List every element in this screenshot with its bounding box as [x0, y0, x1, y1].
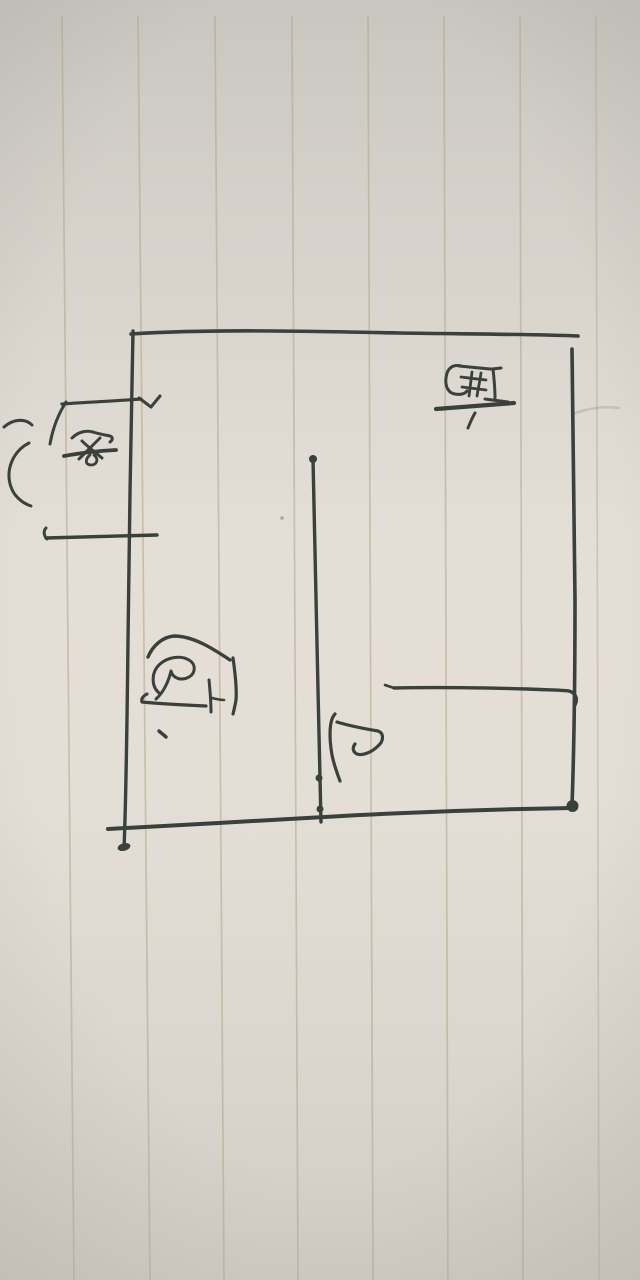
ink-dot-bottom-right	[567, 800, 579, 812]
hand-drawn-floor-plan-sketch	[0, 0, 640, 1280]
notebook-photo	[0, 0, 640, 1280]
ink-dot	[317, 806, 324, 813]
paper-vignette	[0, 0, 640, 1280]
ink-dot	[316, 775, 323, 782]
ink-dot	[309, 455, 317, 463]
ink-speck	[280, 516, 284, 520]
